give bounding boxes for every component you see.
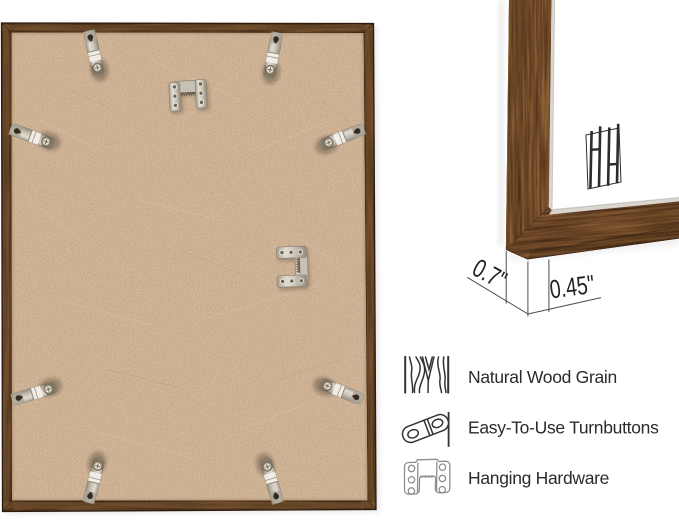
- svg-text:0.45": 0.45": [548, 269, 596, 304]
- svg-text:Hanging Hardware: Hanging Hardware: [468, 468, 609, 488]
- svg-text:Natural Wood Grain: Natural Wood Grain: [468, 367, 617, 387]
- svg-text:Easy-To-Use Turnbuttons: Easy-To-Use Turnbuttons: [468, 418, 659, 438]
